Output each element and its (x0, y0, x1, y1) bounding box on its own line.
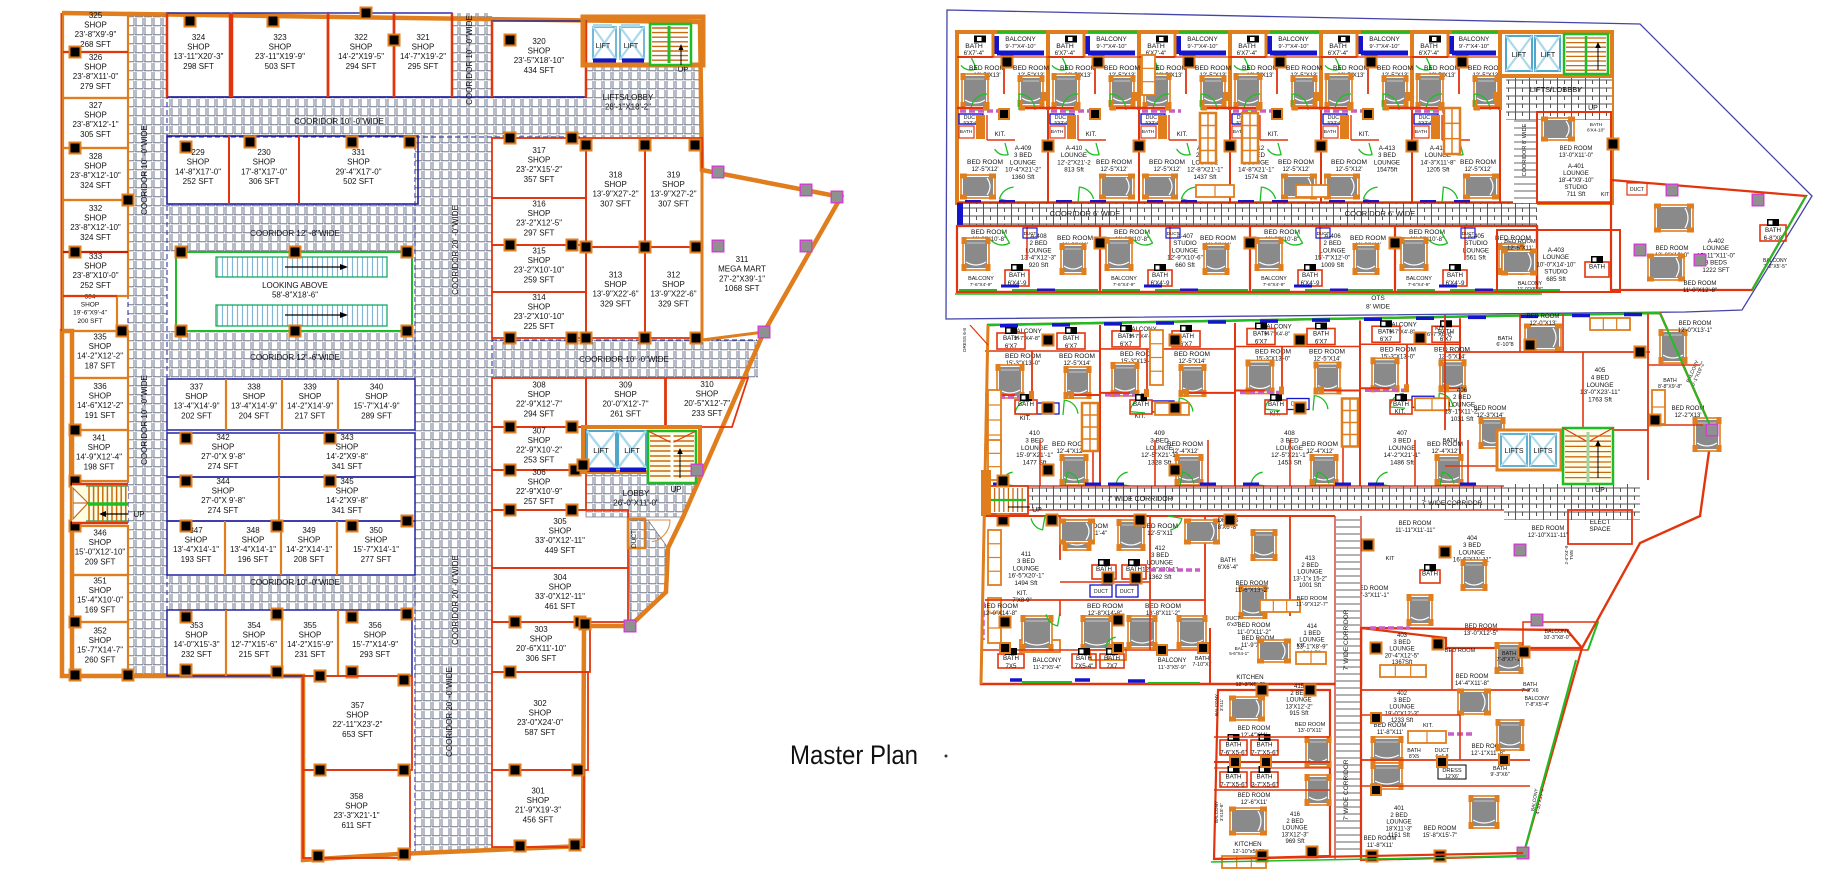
svg-text:BATH: BATH (1443, 438, 1458, 444)
svg-text:BATH: BATH (1238, 43, 1256, 50)
svg-text:BED ROOM11'-6"X13'-2": BED ROOM11'-6"X13'-2" (1235, 581, 1269, 594)
svg-text:BED ROOM11'-0"X11'-2": BED ROOM11'-0"X11'-2" (1237, 623, 1271, 636)
svg-text:BALCONY: BALCONY (1278, 36, 1309, 43)
svg-text:ELECTSPACE: ELECTSPACE (1589, 519, 1610, 533)
svg-text:LIFTS: LIFTS (1533, 448, 1552, 455)
svg-text:BED ROOM: BED ROOM (1167, 441, 1203, 448)
svg-text:COORIDOR 10' -0"WIDE: COORIDOR 10' -0"WIDE (465, 15, 474, 105)
svg-text:UP: UP (1595, 487, 1605, 494)
svg-text:BED ROOM: BED ROOM (1445, 648, 1476, 654)
svg-text:BED ROOM: BED ROOM (1255, 349, 1291, 356)
svg-text:COORIDOR 20' -0"WIDE: COORIDOR 20' -0"WIDE (451, 555, 460, 645)
svg-text:COORIDOR 10' -0"WIDE: COORIDOR 10' -0"WIDE (250, 578, 340, 587)
svg-text:BED ROOM13'-0"X11': BED ROOM13'-0"X11' (1295, 722, 1326, 734)
svg-text:BED ROOM: BED ROOM (1149, 159, 1185, 166)
svg-text:COORIDOR 6' WIDE: COORIDOR 6' WIDE (1050, 209, 1121, 218)
svg-text:BED ROOM: BED ROOM (1200, 235, 1236, 242)
svg-text:BED ROOM11'-9"X12'-7": BED ROOM11'-9"X12'-7" (1296, 596, 1328, 608)
svg-text:UP: UP (133, 510, 144, 519)
svg-text:BATH: BATH (1147, 43, 1165, 50)
svg-text:BALCONY: BALCONY (1096, 36, 1127, 43)
svg-text:LIFT: LIFT (1512, 52, 1527, 59)
svg-text:DUCT: DUCT (1630, 187, 1644, 193)
svg-text:BATH6'X7: BATH6'X7 (1253, 331, 1269, 346)
svg-text:BED ROOM: BED ROOM (1057, 235, 1093, 242)
svg-text:BED ROOM12'-0"X13'-1": BED ROOM12'-0"X13'-1" (1678, 321, 1713, 334)
svg-text:KIT.: KIT. (1020, 415, 1031, 422)
svg-text:BED ROOM12'-2"X13': BED ROOM12'-2"X13' (1672, 406, 1705, 419)
svg-text:KIT.: KIT. (1423, 723, 1433, 729)
svg-text:KIT: KIT (1601, 192, 1610, 198)
svg-text:COORIDOR 20' -0"WIDE: COORIDOR 20' -0"WIDE (451, 205, 460, 295)
svg-text:BED ROOM: BED ROOM (1242, 65, 1278, 72)
svg-text:BED ROOM12'-3"X14': BED ROOM12'-3"X14' (1474, 406, 1507, 419)
svg-text:7' WIDE CORRIDOR: 7' WIDE CORRIDOR (1422, 500, 1483, 507)
svg-text:BATH: BATH (1142, 129, 1155, 135)
svg-text:DUCT: DUCT (1317, 231, 1330, 236)
svg-text:9'-7"X4'-10": 9'-7"X4'-10" (1278, 44, 1308, 50)
svg-text:COORIDOR 8' WIDE: COORIDOR 8' WIDE (1522, 123, 1528, 176)
svg-text:7' WIDE CORRIDOR: 7' WIDE CORRIDOR (1107, 496, 1173, 503)
svg-text:KIT: KIT (1296, 643, 1305, 649)
svg-text:BED ROOM: BED ROOM (1409, 229, 1445, 236)
svg-text:12'-5"X12': 12'-5"X12' (1464, 167, 1491, 173)
svg-text:BATH: BATH (1051, 129, 1064, 135)
svg-text:COORIDOR 10' -0"WIDE: COORIDOR 10' -0"WIDE (140, 375, 149, 465)
svg-text:BED ROOM: BED ROOM (1286, 65, 1322, 72)
svg-text:BED ROOM: BED ROOM (1302, 441, 1338, 448)
svg-text:BATH6'-10"8: BATH6'-10"8 (1496, 336, 1513, 348)
svg-text:BED ROOM: BED ROOM (1060, 65, 1096, 72)
svg-text:LIFTS/LOBBY28'-1"X18'-2": LIFTS/LOBBY28'-1"X18'-2" (603, 93, 654, 112)
svg-text:KIT: KIT (1385, 556, 1394, 562)
svg-text:BATH: BATH (1329, 43, 1347, 50)
svg-text:LIFT: LIFT (596, 43, 611, 50)
svg-text:DUCT: DUCT (1024, 231, 1037, 236)
svg-text:BED ROOM: BED ROOM (1174, 351, 1210, 358)
svg-text:BED ROOM12'-0"X13': BED ROOM12'-0"X13' (1527, 314, 1560, 327)
svg-text:BATH6'X7: BATH6'X7 (1063, 335, 1079, 350)
svg-text:BED ROOM: BED ROOM (1264, 229, 1300, 236)
svg-text:DRESS 6-8: DRESS 6-8 (962, 328, 967, 352)
svg-text:BED ROOM: BED ROOM (1350, 235, 1386, 242)
svg-text:BED ROOM12'-10"X11'-11": BED ROOM12'-10"X11'-11" (1528, 526, 1568, 539)
svg-text:COORIDOR 20' -0"WIDE: COORIDOR 20' -0"WIDE (445, 667, 454, 757)
svg-text:BED ROOM: BED ROOM (1114, 229, 1150, 236)
svg-text:12'-5"X12': 12'-5"X12' (1100, 167, 1127, 173)
svg-text:BED ROOM: BED ROOM (1333, 65, 1369, 72)
svg-text:BED ROOM: BED ROOM (1005, 353, 1041, 360)
svg-text:BED ROOM: BED ROOM (1424, 65, 1460, 72)
svg-text:BED ROOM: BED ROOM (1195, 65, 1231, 72)
svg-text:UP: UP (670, 485, 681, 494)
svg-text:BATH: BATH (1589, 264, 1605, 271)
svg-text:BATH: BATH (1415, 129, 1428, 135)
svg-text:DUCT: DUCT (1120, 589, 1134, 595)
svg-text:BATH: BATH (1133, 401, 1149, 408)
svg-text:BED ROOM13'-0"X11'-0": BED ROOM13'-0"X11'-0" (1559, 146, 1593, 159)
svg-text:BATH: BATH (965, 43, 983, 50)
svg-text:KIT.: KIT. (995, 131, 1006, 138)
svg-text:BED ROOM: BED ROOM (969, 65, 1005, 72)
svg-text:7'-6"X4'-9": 7'-6"X4'-9" (1113, 282, 1136, 288)
svg-text:BED ROOM11'-8"X11': BED ROOM11'-8"X11' (1364, 836, 1397, 849)
svg-text:12'-5"X12': 12'-5"X12' (971, 167, 998, 173)
svg-text:BED ROOM13'-0"X12'-5": BED ROOM13'-0"X12'-5" (1464, 624, 1499, 637)
svg-text:9'-7"X4'-10": 9'-7"X4'-10" (1459, 44, 1489, 50)
svg-text:BALCONY: BALCONY (1406, 276, 1432, 282)
svg-text:BALCONY: BALCONY (1459, 36, 1490, 43)
svg-text:BATH6'X7: BATH6'X7 (1378, 328, 1394, 343)
svg-text:COORIDOR 10' -0"WIDE: COORIDOR 10' -0"WIDE (294, 117, 384, 126)
svg-text:KIT.: KIT. (1359, 131, 1370, 138)
svg-text:UP: UP (1032, 507, 1042, 514)
svg-text:BATH: BATH (1324, 129, 1337, 135)
svg-text:BATH7X5-4": BATH7X5-4" (1075, 655, 1094, 670)
svg-text:12'-5"X11: 12'-5"X11 (1147, 531, 1173, 537)
svg-text:BED ROOM: BED ROOM (1096, 159, 1132, 166)
svg-text:9'-7"X4'-10": 9'-7"X4'-10" (1369, 44, 1399, 50)
svg-text:BATH6'X7: BATH6'X7 (1313, 331, 1329, 346)
svg-text:BATH7-10"X7: BATH7-10"X7 (1192, 656, 1211, 668)
svg-text:DUCT: DUCT (631, 530, 638, 548)
svg-text:BATH: BATH (960, 129, 973, 135)
svg-text:BALCONY: BALCONY (1187, 36, 1218, 43)
svg-text:BALCONY: BALCONY (1033, 658, 1062, 664)
svg-text:BED ROOM12'-5"X11': BED ROOM12'-5"X11' (1504, 239, 1536, 252)
svg-text:BATH: BATH (1268, 401, 1284, 408)
svg-text:BATH: BATH (1393, 401, 1409, 408)
svg-text:BED ROOM: BED ROOM (1151, 65, 1187, 72)
svg-text:LIFT: LIFT (624, 446, 640, 455)
svg-text:COORIDOR 10' -0"WIDE: COORIDOR 10' -0"WIDE (140, 125, 149, 215)
svg-text:UP: UP (678, 65, 688, 74)
svg-text:BED ROOM: BED ROOM (982, 603, 1018, 610)
svg-text:KITCHEN: KITCHEN (1236, 674, 1263, 681)
svg-text:BALCONY: BALCONY (968, 276, 994, 282)
svg-text:COORIDOR 12' -6"WIDE: COORIDOR 12' -6"WIDE (250, 353, 340, 362)
svg-text:BATH6'X7: BATH6'X7 (1118, 333, 1134, 348)
svg-text:COORIDOR 6' WIDE: COORIDOR 6' WIDE (1345, 209, 1416, 218)
svg-text:9'-7"X4'-10": 9'-7"X4'-10" (1187, 44, 1217, 50)
svg-text:COORIDOR 12' -8"WIDE: COORIDOR 12' -8"WIDE (250, 229, 340, 238)
svg-text:Master Plan: Master Plan (790, 740, 918, 770)
svg-text:BALCONY: BALCONY (1261, 276, 1287, 282)
svg-text:BATH: BATH (1422, 571, 1438, 578)
svg-text:BATH9'-3"X6": BATH9'-3"X6" (1490, 766, 1509, 778)
svg-text:BATH8'X5: BATH8'X5 (1407, 748, 1421, 760)
svg-text:KITCHEN: KITCHEN (1234, 841, 1261, 848)
svg-text:BED ROOM: BED ROOM (971, 229, 1007, 236)
svg-text:BATH: BATH (1420, 43, 1438, 50)
svg-text:BALCONY: BALCONY (1111, 276, 1137, 282)
svg-text:7'-6"X4'-9": 7'-6"X4'-9" (1408, 282, 1431, 288)
svg-text:7'-6"X4'-9": 7'-6"X4'-9" (970, 282, 993, 288)
svg-text:BALCONY: BALCONY (1005, 36, 1036, 43)
svg-text:BED ROOM15'-8"X15'-7": BED ROOM15'-8"X15'-7" (1423, 826, 1458, 839)
svg-text:BED ROOM11'-0"X12'-8": BED ROOM11'-0"X12'-8" (1683, 281, 1717, 294)
svg-text:BED ROOM12'-6"X11': BED ROOM12'-6"X11' (1238, 793, 1271, 806)
svg-text:DUCT: DUCT (1167, 231, 1180, 236)
svg-text:12'-5"X12': 12'-5"X12' (1153, 167, 1180, 173)
svg-text:KIT.: KIT. (1086, 131, 1097, 138)
svg-text:BED ROOM: BED ROOM (1087, 603, 1123, 610)
svg-text:BALCONY7'-8"X5'-4": BALCONY7'-8"X5'-4" (1525, 696, 1550, 708)
svg-text:LOOKING ABOVE58'-8"X18'-6": LOOKING ABOVE58'-8"X18'-6" (262, 281, 328, 300)
svg-text:BED ROOM11'-8"X11': BED ROOM11'-8"X11' (1374, 723, 1407, 736)
svg-text:BED ROOM: BED ROOM (1142, 523, 1178, 530)
svg-text:BED ROOM: BED ROOM (1278, 159, 1314, 166)
svg-text:11'-2"X5'-4": 11'-2"X5'-4" (1033, 665, 1061, 671)
svg-text:LIFT: LIFT (624, 43, 639, 50)
svg-text:BALCONY: BALCONY (1369, 36, 1400, 43)
svg-text:BED ROOM: BED ROOM (1104, 65, 1140, 72)
svg-text:BATH7'-2"X6: BATH7'-2"X6 (1521, 682, 1538, 694)
svg-text:BED ROOM: BED ROOM (1377, 65, 1413, 72)
svg-text:BALCONY10'-3"X8'-0": BALCONY10'-3"X8'-0" (1543, 629, 1570, 641)
svg-text:COORIDOR 10' -0"WIDE: COORIDOR 10' -0"WIDE (579, 355, 669, 364)
svg-text:7' WIDE CORRIDOR: 7' WIDE CORRIDOR (1343, 609, 1350, 670)
svg-text:BED ROOM: BED ROOM (1059, 353, 1095, 360)
svg-text:11'-3"X5'-9": 11'-3"X5'-9" (1158, 665, 1186, 671)
svg-text:BED ROOM: BED ROOM (967, 159, 1003, 166)
svg-text:LIFTS/LOBBBY: LIFTS/LOBBBY (1530, 85, 1583, 94)
svg-text:BALCONY: BALCONY (1158, 658, 1187, 664)
svg-text:9'-7"X4'-10": 9'-7"X4'-10" (1005, 44, 1035, 50)
svg-text:12'-5"X12': 12'-5"X12' (1282, 167, 1309, 173)
svg-text:DUCT: DUCT (1094, 589, 1108, 595)
svg-text:BED ROOM: BED ROOM (1460, 159, 1496, 166)
svg-text:7' WIDE CORRIDOR: 7' WIDE CORRIDOR (1343, 759, 1350, 820)
svg-text:12'-5"X12': 12'-5"X12' (1335, 167, 1362, 173)
svg-text:BATH: BATH (1056, 43, 1074, 50)
svg-text:LIFT: LIFT (593, 446, 609, 455)
svg-text:BED ROOM: BED ROOM (1309, 349, 1345, 356)
svg-text:LIFT: LIFT (1541, 52, 1556, 59)
svg-text:LIFTS: LIFTS (1504, 448, 1523, 455)
svg-text:7'-6"X4'-9": 7'-6"X4'-9" (1263, 282, 1286, 288)
svg-text:BED ROOM: BED ROOM (1013, 65, 1049, 72)
svg-text:BED ROOM: BED ROOM (1331, 159, 1367, 166)
svg-text:9'-7"X4'-10": 9'-7"X4'-10" (1096, 44, 1126, 50)
svg-text:BED ROOM14'-4"X11'-8": BED ROOM14'-4"X11'-8" (1455, 674, 1489, 687)
svg-text:DUCT: DUCT (1462, 231, 1475, 236)
svg-text:BATH6'X6'-4": BATH6'X6'-4" (1218, 558, 1238, 571)
svg-text:BATH: BATH (1018, 401, 1034, 408)
svg-text:BED ROOM11'-11"X11'-11": BED ROOM11'-11"X11'-11" (1395, 521, 1434, 534)
svg-text:BED ROOM: BED ROOM (1380, 346, 1416, 353)
svg-text:KIT.: KIT. (1177, 131, 1188, 138)
svg-text:BALCONY3'X18'-8": BALCONY3'X18'-8" (1214, 801, 1224, 823)
svg-text:UP: UP (1588, 105, 1598, 112)
svg-text:KIT.: KIT. (1268, 131, 1279, 138)
svg-text:12'X6': 12'X6' (1445, 774, 1459, 780)
svg-text:BATH6'X7: BATH6'X7 (1003, 335, 1019, 350)
